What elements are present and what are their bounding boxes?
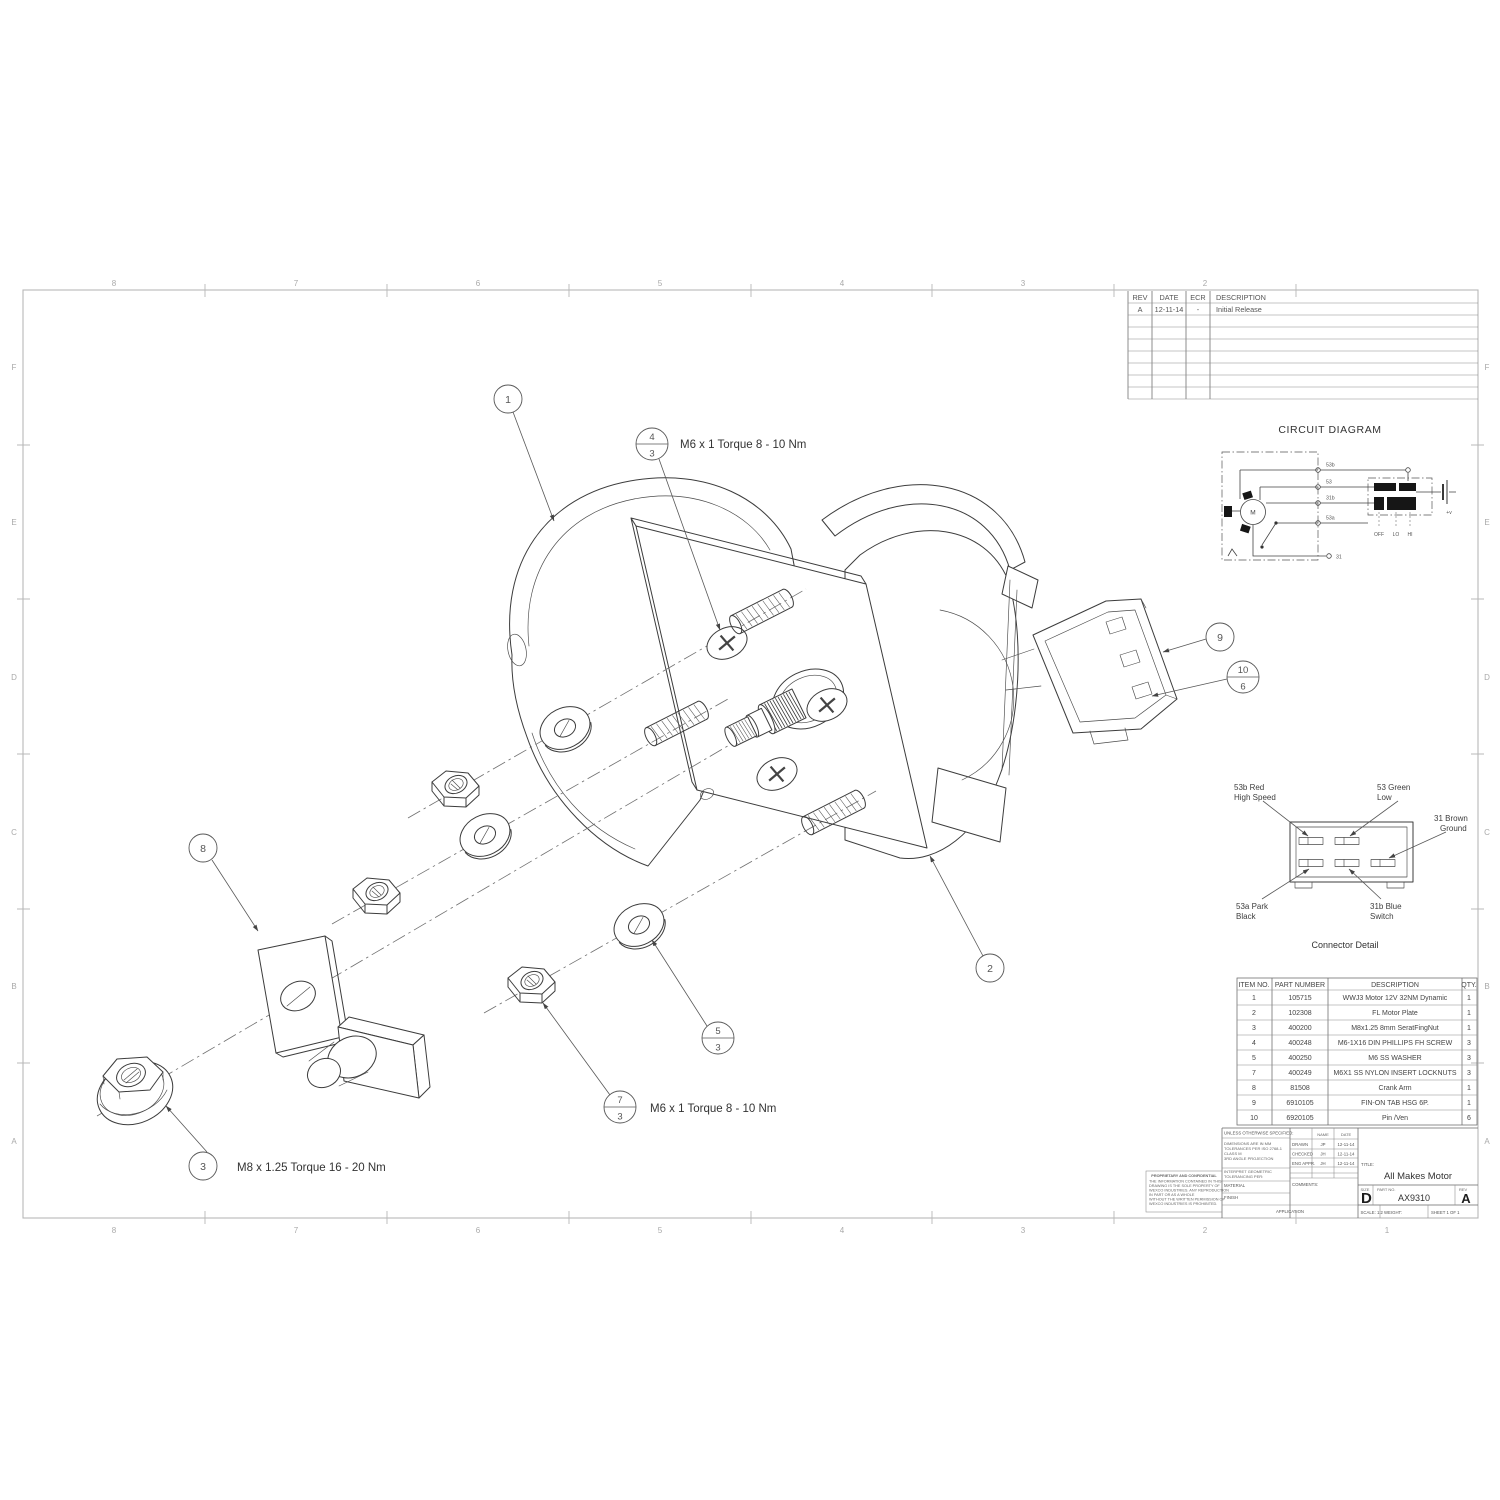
sign-role: ENG APPR. bbox=[1292, 1161, 1315, 1166]
application-label: APPLICATION bbox=[1276, 1209, 1304, 1214]
svg-text:M6 SS WASHER: M6 SS WASHER bbox=[1368, 1055, 1421, 1062]
rev-cell: Initial Release bbox=[1216, 305, 1262, 314]
sign-date: 12-11-14 bbox=[1338, 1152, 1355, 1157]
svg-text:FL Motor Plate: FL Motor Plate bbox=[1372, 1010, 1418, 1017]
bom-row: 4400248M6-1X16 DIN PHILLIPS FH SCREW3 bbox=[1252, 1040, 1471, 1047]
zone-row-left: A bbox=[11, 1137, 17, 1146]
sign-name: JP bbox=[1320, 1142, 1325, 1147]
locknut bbox=[353, 878, 400, 914]
zone-row-left: F bbox=[12, 363, 17, 372]
connector-detail: 53b Red High Speed 53 Green Low 31 Brown… bbox=[1234, 783, 1468, 950]
wire-label-31: 31 bbox=[1336, 555, 1342, 561]
pin-label-park: Black bbox=[1236, 912, 1257, 921]
svg-text:10: 10 bbox=[1238, 665, 1249, 676]
svg-text:9: 9 bbox=[1252, 1100, 1256, 1107]
zone-row-left: D bbox=[11, 673, 17, 682]
svg-text:6910105: 6910105 bbox=[1286, 1100, 1313, 1107]
svg-text:400250: 400250 bbox=[1288, 1055, 1311, 1062]
pin-label-high-speed: High Speed bbox=[1234, 793, 1276, 802]
size-value: D bbox=[1361, 1190, 1372, 1207]
svg-text:3: 3 bbox=[1252, 1025, 1256, 1032]
finish-label: FINISH bbox=[1224, 1195, 1238, 1200]
drawing-canvas: 8 7 6 5 4 3 2 8 7 6 5 4 3 2 1 F E D C B … bbox=[0, 0, 1500, 1500]
flange-nut bbox=[87, 1050, 183, 1137]
bom-row: 96910105FIN-ON TAB HSG 6P.1 bbox=[1252, 1100, 1471, 1107]
rev-header: ECR bbox=[1190, 293, 1205, 302]
svg-text:2: 2 bbox=[1252, 1010, 1256, 1017]
drawing-title: All Makes Motor bbox=[1384, 1171, 1452, 1182]
zone-row-right: E bbox=[1484, 518, 1489, 527]
proprietary-title: PROPRIETARY AND CONFIDENTIAL bbox=[1151, 1174, 1217, 1178]
power-label: +v bbox=[1446, 510, 1452, 516]
comments-label: COMMENTS: bbox=[1292, 1182, 1318, 1187]
bom-header: DESCRIPTION bbox=[1371, 982, 1419, 989]
switch-off-label: OFF bbox=[1374, 532, 1384, 538]
zone-col-bottom: 8 bbox=[112, 1226, 117, 1235]
bom-row: 3400200M8x1.25 8mm SeratFingNut1 bbox=[1252, 1025, 1471, 1032]
svg-text:8: 8 bbox=[1252, 1085, 1256, 1092]
zone-row-left: C bbox=[11, 828, 17, 837]
rev-cell: - bbox=[1197, 305, 1200, 314]
svg-text:1: 1 bbox=[1467, 1010, 1471, 1017]
name-header: NAME bbox=[1317, 1132, 1329, 1137]
zone-row-right: F bbox=[1485, 363, 1490, 372]
svg-text:400200: 400200 bbox=[1288, 1025, 1311, 1032]
svg-text:3: 3 bbox=[1467, 1055, 1471, 1062]
svg-text:8: 8 bbox=[200, 843, 206, 855]
balloon-7-3: 7 3 bbox=[604, 1091, 636, 1123]
bom-row: 881508Crank Arm1 bbox=[1252, 1085, 1471, 1092]
svg-text:WWJ3 Motor 12V 32NM Dynamic: WWJ3 Motor 12V 32NM Dynamic bbox=[1343, 995, 1448, 1002]
bom-row: 106920105Pin /Ven6 bbox=[1250, 1115, 1471, 1122]
zone-col-top: 8 bbox=[112, 279, 117, 288]
wire-label-53b: 53b bbox=[1326, 463, 1335, 469]
zone-row-left: E bbox=[11, 518, 16, 527]
svg-text:1: 1 bbox=[1252, 995, 1256, 1002]
svg-text:400249: 400249 bbox=[1288, 1070, 1311, 1077]
bom-row: 5400250M6 SS WASHER3 bbox=[1252, 1055, 1471, 1062]
zone-col-top: 7 bbox=[294, 279, 299, 288]
zone-col-top: 6 bbox=[476, 279, 481, 288]
washer bbox=[607, 895, 673, 957]
proprietary-line: IN PART OR AS A WHOLE bbox=[1149, 1193, 1195, 1197]
zone-col-top: 2 bbox=[1203, 279, 1208, 288]
switch-hi-label: HI bbox=[1408, 532, 1413, 538]
switch-lo-label: LO bbox=[1393, 532, 1400, 538]
svg-text:1: 1 bbox=[505, 394, 511, 406]
torque-note-m6-top: M6 x 1 Torque 8 - 10 Nm bbox=[680, 439, 806, 451]
svg-text:4: 4 bbox=[649, 432, 654, 443]
circuit-diagram: CIRCUIT DIAGRAM M 53b 53 31b 53a 31 O bbox=[1222, 424, 1456, 561]
svg-text:3: 3 bbox=[715, 1043, 720, 1054]
proprietary-line: WEXCO INDUSTRIES IS PROHIBITED. bbox=[1149, 1202, 1217, 1206]
pin-label-low: 53 Green bbox=[1377, 783, 1410, 792]
crank-arm bbox=[258, 936, 430, 1098]
svg-text:3: 3 bbox=[1467, 1070, 1471, 1077]
zone-col-bottom: 5 bbox=[658, 1226, 663, 1235]
svg-text:3: 3 bbox=[617, 1112, 622, 1123]
pin-label-high-speed: 53b Red bbox=[1234, 783, 1264, 792]
svg-text:102308: 102308 bbox=[1288, 1010, 1311, 1017]
proprietary-line: WEXCO INDUSTRIES. ANY REPRODUCTION bbox=[1149, 1189, 1229, 1193]
bom-header: PART NUMBER bbox=[1275, 982, 1325, 989]
svg-text:7: 7 bbox=[1252, 1070, 1256, 1077]
svg-text:1: 1 bbox=[1467, 1100, 1471, 1107]
balloon-3: 3 bbox=[189, 1152, 217, 1180]
bom-header: ITEM NO. bbox=[1238, 982, 1269, 989]
connector-detail-title: Connector Detail bbox=[1311, 940, 1378, 950]
zone-col-bottom: 1 bbox=[1385, 1226, 1390, 1235]
zone-col-bottom: 2 bbox=[1203, 1226, 1208, 1235]
torque-note-m6-bottom: M6 x 1 Torque 8 - 10 Nm bbox=[650, 1103, 776, 1115]
bom-header: QTY. bbox=[1461, 982, 1476, 989]
circuit-title: CIRCUIT DIAGRAM bbox=[1278, 424, 1381, 436]
wire-label-53: 53 bbox=[1326, 480, 1332, 486]
svg-text:6: 6 bbox=[1467, 1115, 1471, 1122]
interpret-line: TOLERANCING PER: bbox=[1224, 1174, 1263, 1179]
svg-text:3: 3 bbox=[200, 1161, 206, 1173]
svg-text:FIN-ON TAB HSG 6P.: FIN-ON TAB HSG 6P. bbox=[1361, 1100, 1429, 1107]
sign-name: JH bbox=[1320, 1152, 1325, 1157]
zone-row-left: B bbox=[11, 982, 16, 991]
pin-label-low: Low bbox=[1377, 793, 1392, 802]
spec-line: 3RD ANGLE PROJECTION bbox=[1224, 1156, 1273, 1161]
washer bbox=[453, 805, 519, 867]
proprietary-line: THE INFORMATION CONTAINED IN THIS bbox=[1149, 1180, 1222, 1184]
wire-label-53a: 53a bbox=[1326, 516, 1335, 522]
revision-table: REV DATE ECR DESCRIPTION A 12-11-14 - In… bbox=[1128, 291, 1478, 399]
svg-text:1: 1 bbox=[1467, 1025, 1471, 1032]
wire-label-31b: 31b bbox=[1326, 496, 1335, 502]
svg-text:105715: 105715 bbox=[1288, 995, 1311, 1002]
bom-table: ITEM NO. PART NUMBER DESCRIPTION QTY. 11… bbox=[1237, 978, 1477, 1125]
connector-pins bbox=[1299, 838, 1395, 867]
exploded-view bbox=[87, 478, 1177, 1137]
torque-note-m8: M8 x 1.25 Torque 16 - 20 Nm bbox=[237, 1162, 386, 1174]
sign-date: 12-11-14 bbox=[1338, 1142, 1355, 1147]
balloon-10-6: 10 6 bbox=[1227, 661, 1259, 693]
proprietary-line: DRAWING IS THE SOLE PROPERTY OF bbox=[1149, 1184, 1220, 1188]
balloon-5-3: 5 3 bbox=[702, 1022, 734, 1054]
engineering-drawing-sheet: 8 7 6 5 4 3 2 8 7 6 5 4 3 2 1 F E D C B … bbox=[0, 0, 1500, 1500]
svg-text:10: 10 bbox=[1250, 1115, 1258, 1122]
rev-header: DATE bbox=[1160, 293, 1179, 302]
weight-label: WEIGHT: bbox=[1384, 1210, 1402, 1215]
rev-header: DESCRIPTION bbox=[1216, 293, 1266, 302]
svg-text:1: 1 bbox=[1467, 1085, 1471, 1092]
zone-col-bottom: 6 bbox=[476, 1226, 481, 1235]
svg-text:9: 9 bbox=[1217, 632, 1223, 644]
zone-row-right: A bbox=[1484, 1137, 1490, 1146]
balloon-1: 1 bbox=[494, 385, 522, 413]
svg-text:3: 3 bbox=[1467, 1040, 1471, 1047]
zone-col-top: 3 bbox=[1021, 279, 1026, 288]
balloon-4-3: 4 3 bbox=[636, 428, 668, 460]
sheet-value: SHEET 1 OF 1 bbox=[1431, 1210, 1460, 1215]
svg-text:M6-1X16 DIN PHILLIPS FH SCREW: M6-1X16 DIN PHILLIPS FH SCREW bbox=[1338, 1040, 1453, 1047]
bom-row: 1105715WWJ3 Motor 12V 32NM Dynamic1 bbox=[1252, 995, 1471, 1002]
sign-name: JH bbox=[1320, 1161, 1325, 1166]
pin-label-ground: Ground bbox=[1440, 824, 1467, 833]
balloon-8: 8 bbox=[189, 834, 217, 862]
svg-text:400248: 400248 bbox=[1288, 1040, 1311, 1047]
bom-row: 7400249M6X1 SS NYLON INSERT LOCKNUTS3 bbox=[1252, 1070, 1471, 1077]
svg-text:1: 1 bbox=[1467, 995, 1471, 1002]
svg-text:3: 3 bbox=[649, 449, 654, 460]
bom-row: 2102308FL Motor Plate1 bbox=[1252, 1010, 1471, 1017]
zone-col-bottom: 4 bbox=[840, 1226, 845, 1235]
locknut bbox=[508, 967, 555, 1003]
part-no-label: PART NO. bbox=[1377, 1187, 1395, 1192]
svg-text:4: 4 bbox=[1252, 1040, 1256, 1047]
svg-text:5: 5 bbox=[1252, 1055, 1256, 1062]
svg-text:M6X1 SS NYLON INSERT LOCKNUTS: M6X1 SS NYLON INSERT LOCKNUTS bbox=[1333, 1070, 1456, 1077]
rev-cell: A bbox=[1138, 305, 1143, 314]
title-label: TITLE: bbox=[1361, 1162, 1374, 1167]
circuit-motor-label: M bbox=[1250, 510, 1255, 517]
svg-text:5: 5 bbox=[715, 1026, 720, 1037]
pin-label-switch: Switch bbox=[1370, 912, 1394, 921]
svg-text:6920105: 6920105 bbox=[1286, 1115, 1313, 1122]
sign-role: CHECKED bbox=[1292, 1152, 1313, 1157]
connector-housing-3d bbox=[1033, 599, 1177, 744]
pin-label-ground: 31 Brown bbox=[1434, 814, 1468, 823]
zone-col-bottom: 7 bbox=[294, 1226, 299, 1235]
pin-label-park: 53a Park bbox=[1236, 902, 1269, 911]
svg-text:7: 7 bbox=[617, 1095, 622, 1106]
rev-value: A bbox=[1461, 1191, 1471, 1206]
zone-row-right: C bbox=[1484, 828, 1490, 837]
material-label: MATERIAL bbox=[1224, 1183, 1246, 1188]
scale-value: SCALE: 1:2 bbox=[1361, 1210, 1384, 1215]
sign-date: 12-11-14 bbox=[1338, 1161, 1355, 1166]
date-header: DATE bbox=[1341, 1132, 1352, 1137]
zone-row-right: B bbox=[1484, 982, 1489, 991]
svg-text:Pin /Ven: Pin /Ven bbox=[1382, 1115, 1408, 1122]
svg-text:M8x1.25 8mm SeratFingNut: M8x1.25 8mm SeratFingNut bbox=[1351, 1025, 1439, 1032]
zone-col-bottom: 3 bbox=[1021, 1226, 1026, 1235]
part-no-value: AX9310 bbox=[1398, 1193, 1430, 1203]
sign-role: DRAWN bbox=[1292, 1142, 1308, 1147]
title-block: PROPRIETARY AND CONFIDENTIAL THE INFORMA… bbox=[1146, 1128, 1478, 1218]
balloon-9: 9 bbox=[1206, 623, 1234, 651]
locknut bbox=[432, 771, 479, 807]
pin-label-switch: 31b Blue bbox=[1370, 902, 1402, 911]
rev-header: REV bbox=[1132, 293, 1147, 302]
zone-col-top: 5 bbox=[658, 279, 663, 288]
svg-text:2: 2 bbox=[987, 963, 993, 975]
zone-col-top: 4 bbox=[840, 279, 845, 288]
proprietary-line: WITHOUT THE WRITTEN PERMISSION OF bbox=[1149, 1198, 1225, 1202]
svg-text:Crank Arm: Crank Arm bbox=[1378, 1085, 1411, 1092]
balloon-2: 2 bbox=[976, 954, 1004, 982]
zone-row-right: D bbox=[1484, 673, 1490, 682]
spec-header: UNLESS OTHERWISE SPECIFIED: bbox=[1224, 1131, 1293, 1136]
svg-text:6: 6 bbox=[1240, 682, 1245, 693]
svg-text:81508: 81508 bbox=[1290, 1085, 1310, 1092]
rev-cell: 12-11-14 bbox=[1155, 305, 1184, 314]
